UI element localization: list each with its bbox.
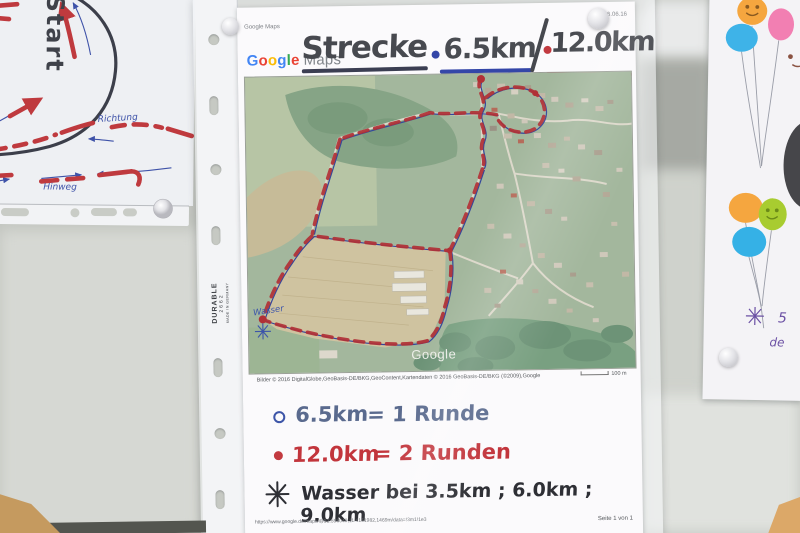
- blue-ring-bullet-icon: [273, 411, 285, 423]
- legend1-equals: = 1 Runde: [367, 401, 490, 427]
- push-pin: [222, 18, 239, 35]
- satellite-map: Wasser Google: [245, 72, 636, 374]
- dark-figure: [783, 121, 800, 210]
- title-distance-long: 12.0km: [550, 26, 655, 59]
- note-fragment-2: de: [769, 335, 784, 349]
- push-pin: [719, 348, 738, 367]
- map-drawing: Wasser Google: [245, 72, 636, 374]
- hinweg-label: Hinweg: [43, 182, 77, 192]
- sleeve-brand: DURABLE 2662 MADE IN GERMANY: [211, 273, 230, 333]
- legend1-distance: 6.5km: [295, 402, 369, 427]
- scale-bar-icon: [580, 371, 608, 375]
- balloon-drawing: 5 de: [702, 0, 800, 401]
- scale-label: 100 m: [611, 371, 626, 377]
- map-scale: 100 m: [580, 371, 626, 378]
- orange-balloon: [737, 0, 767, 25]
- right-balloon-paper: 5 de: [702, 0, 800, 401]
- legend2-distance: 12.0km: [291, 442, 380, 467]
- red-dot-bullet-icon: [274, 451, 283, 460]
- print-header-left: Google Maps: [244, 24, 280, 31]
- asterisk-icon: [262, 479, 292, 509]
- punch-hole: [208, 34, 219, 45]
- wall-shade: [0, 230, 200, 533]
- title-distance-short: 6.5km: [443, 31, 537, 65]
- pink-balloon: [768, 8, 795, 40]
- start-label: Start: [40, 0, 69, 73]
- legend-line-2: 12.0km = 2 Runden: [244, 435, 643, 477]
- brand-origin: MADE IN GERMANY: [225, 282, 230, 323]
- title-strecke: Strecke: [301, 29, 428, 67]
- wall-shade: [640, 392, 800, 533]
- push-pin: [588, 8, 609, 29]
- balloon-strings: [737, 26, 779, 329]
- printed-map-page: Google Maps 06.06.16 GoogleMaps Strecke …: [237, 2, 643, 533]
- purple-asterisk-icon: [746, 307, 764, 325]
- note-fragment-1: 5: [778, 310, 787, 326]
- punch-hole: [210, 164, 221, 175]
- green-balloon: [758, 198, 787, 230]
- punch-hole: [211, 226, 220, 245]
- map-page-sleeve: DURABLE 2662 MADE IN GERMANY Google Maps…: [193, 0, 664, 533]
- google-watermark: Google: [411, 346, 456, 362]
- blue-balloon-2: [732, 227, 767, 258]
- legend2-equals: = 2 Runden: [373, 440, 511, 466]
- photo-of-route-board: Start Richtung Hinweg DURABLE 2662 MADE …: [0, 0, 800, 533]
- course-sketch: Start Richtung Hinweg: [0, 0, 201, 232]
- legend-line-1: 6.5km = 1 Runde: [243, 395, 642, 437]
- punch-hole: [214, 428, 225, 439]
- print-footer-page: Seite 1 von 1: [598, 516, 633, 523]
- blue-dot-icon: [432, 51, 440, 59]
- punch-hole: [213, 358, 222, 377]
- orange-balloon-2: [729, 193, 764, 224]
- punch-hole: [215, 490, 224, 509]
- map-attribution: Bilder © 2016 DigitalGlobe,GeoBasis-DE/B…: [257, 373, 541, 383]
- google-logo-text: Google: [247, 52, 300, 70]
- push-pin: [153, 199, 172, 218]
- legend-line-3: Wasser bei 3.5km ; 6.0km ; 9.0km: [244, 473, 643, 515]
- left-sketch-paper: Start Richtung Hinweg: [0, 0, 201, 232]
- punch-hole: [209, 96, 218, 115]
- partial-face: [788, 50, 800, 66]
